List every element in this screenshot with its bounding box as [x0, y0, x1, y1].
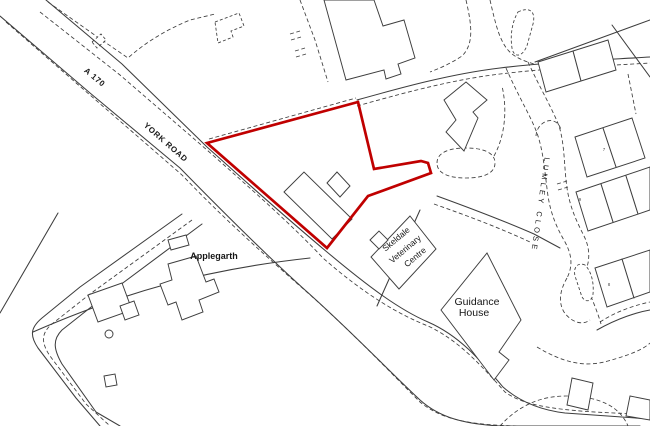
estate-road-bottom: [500, 396, 628, 426]
corner-solid-east: [597, 310, 650, 330]
house-bottomright: [567, 378, 593, 410]
house-row-3: [595, 250, 650, 307]
hedge-topright-2: [612, 25, 650, 77]
kerb-vertical-topright: [628, 74, 636, 114]
building-east-of-site: [444, 82, 487, 151]
close-entrance-west: [430, 0, 471, 72]
building-top-center: [324, 0, 415, 80]
estate-road-curve: [537, 343, 650, 364]
access-drive-kerb: [494, 86, 505, 156]
gate-marks-north: [290, 31, 306, 57]
buildings: [88, 0, 650, 420]
lane-edge-west: [32, 214, 182, 426]
applegarth-outbuilding: [168, 235, 189, 250]
lumley-head-cap: [536, 121, 561, 136]
lane-edge-east: [55, 224, 202, 426]
site-north-boundary: [209, 98, 356, 139]
road-kerb-sw: [6, 22, 520, 426]
plot-line-top: [300, 0, 328, 82]
lane-centerline: [44, 220, 193, 426]
outbuilding-dashed: [215, 13, 244, 43]
applegarth-house: [160, 256, 219, 320]
shed-small: [104, 374, 117, 387]
guidance-house-label-2: House: [459, 307, 490, 319]
map-canvas: A 170 YORK ROAD Applegarth Skeldale Vete…: [0, 0, 650, 426]
turning-head-oval: [437, 148, 495, 178]
pond-feature: [105, 330, 113, 338]
applegarth-label: Applegarth: [190, 251, 238, 261]
site-building-wing: [327, 172, 350, 197]
drive-boundary-dashed: [434, 204, 530, 242]
hedge-bottomleft: [0, 213, 58, 313]
verge-blob-topright: [511, 10, 534, 55]
verge-top-left: [48, 2, 215, 58]
road-number-label: A 170: [82, 66, 107, 89]
site-location-map: A 170 YORK ROAD Applegarth Skeldale Vete…: [0, 0, 650, 426]
garden-blob-east: [575, 264, 594, 301]
house-bottomright-partial: [626, 396, 650, 420]
lumley-close-label: LUMLEY CLOSE: [529, 157, 551, 253]
